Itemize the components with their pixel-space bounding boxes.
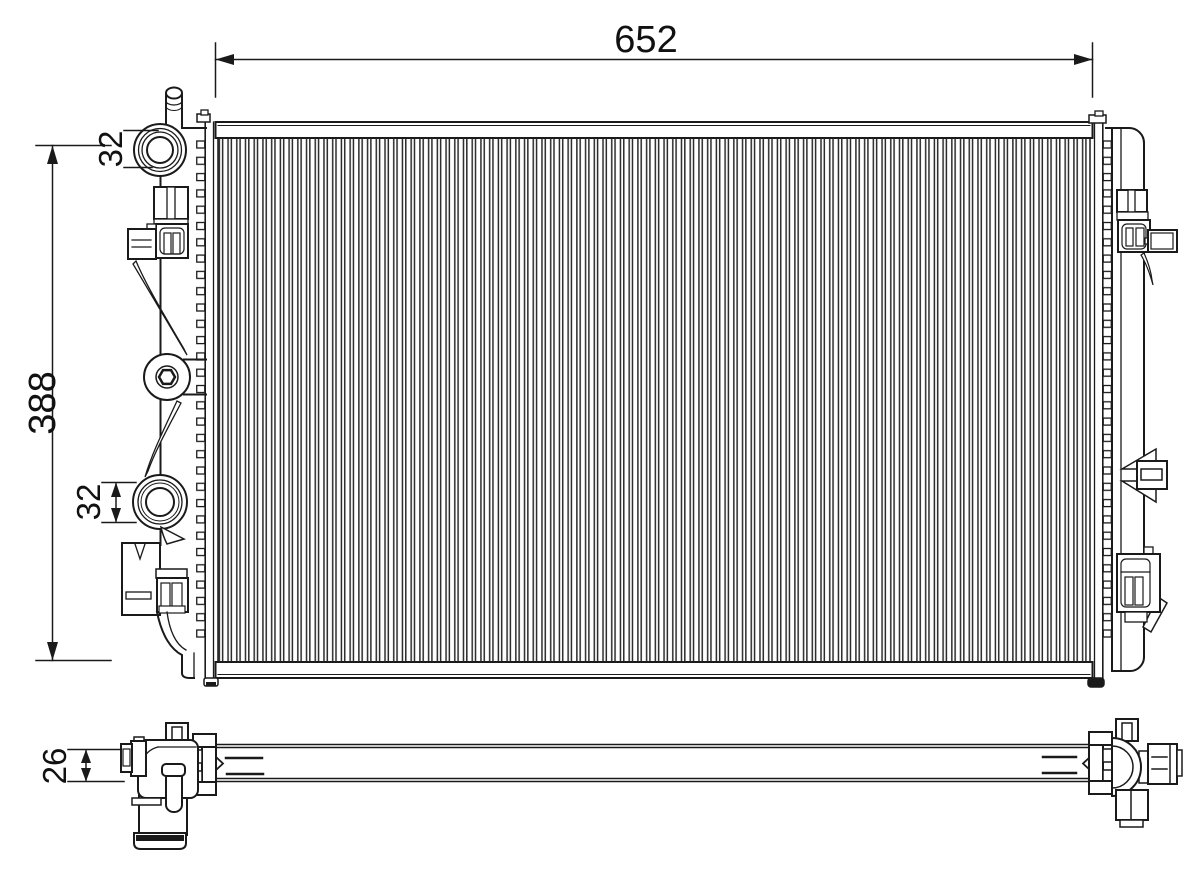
- dim-depth-label: 26: [36, 748, 73, 785]
- dim-top-port-label: 32: [92, 131, 129, 168]
- core-fins: [218, 138, 1090, 662]
- profile-body: [216, 745, 1090, 782]
- middle-tab: [1122, 449, 1167, 502]
- right-foot: [1088, 678, 1104, 687]
- front-view: [122, 88, 1177, 688]
- left-side-plate: [196, 122, 214, 678]
- right-tank-features: [1117, 190, 1177, 632]
- lower-bracket: [122, 543, 188, 615]
- right-side-plate: [1095, 122, 1113, 678]
- profile-right-bracket: [1089, 732, 1112, 794]
- left-tank-features: [122, 124, 206, 678]
- core: [197, 110, 1106, 687]
- dim-depth: [68, 750, 124, 782]
- dim-width-label: 652: [614, 19, 677, 61]
- left-datum-arrow: [216, 757, 223, 770]
- right-fitting: [1112, 719, 1182, 827]
- radiator-drawing: 652 388 32 32 26: [0, 0, 1200, 872]
- dim-height-label: 388: [22, 371, 64, 434]
- bottom-view: [121, 719, 1182, 849]
- right-fitting-connector: [1148, 744, 1177, 784]
- upper-connector: [128, 229, 156, 259]
- outlet-fitting: [121, 723, 198, 849]
- filler-neck: [166, 88, 182, 127]
- dim-bottom-port-label: 32: [70, 484, 107, 521]
- dim-bottom-port: [102, 483, 136, 523]
- lower-port: [133, 475, 187, 529]
- right-lower-bracket: [1117, 547, 1167, 632]
- drain-pipe: [162, 764, 185, 776]
- drawing-canvas: 652 388 32 32 26: [0, 0, 1200, 872]
